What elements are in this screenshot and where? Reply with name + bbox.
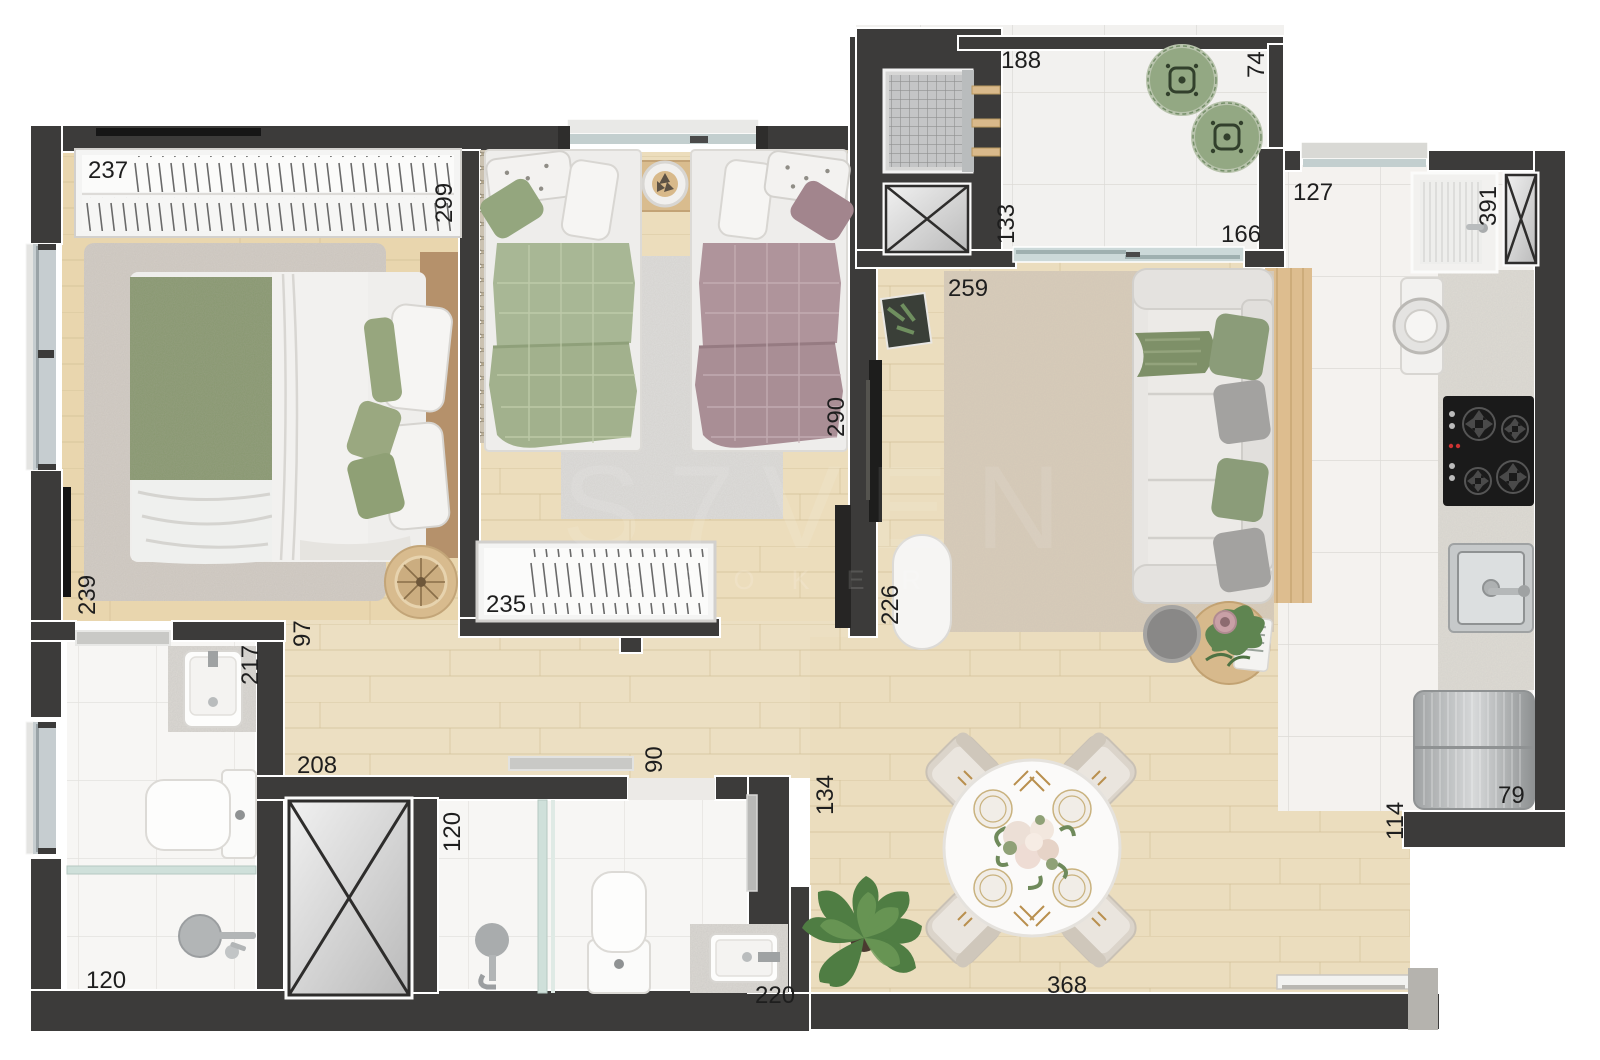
svg-text:290: 290 (823, 397, 850, 437)
svg-text:79: 79 (1498, 782, 1525, 809)
svg-text:90: 90 (641, 746, 668, 773)
svg-text:391: 391 (1475, 186, 1502, 226)
svg-text:166: 166 (1221, 221, 1261, 248)
svg-text:134: 134 (812, 775, 839, 815)
svg-text:120: 120 (439, 812, 466, 852)
svg-text:239: 239 (74, 575, 101, 615)
svg-text:237: 237 (88, 157, 128, 184)
svg-text:97: 97 (289, 620, 316, 647)
svg-text:217: 217 (237, 645, 264, 685)
svg-text:120: 120 (86, 967, 126, 994)
svg-text:127: 127 (1293, 179, 1333, 206)
svg-text:114: 114 (1382, 802, 1409, 840)
svg-text:259: 259 (948, 275, 988, 302)
svg-text:299: 299 (431, 183, 458, 223)
svg-text:133: 133 (993, 204, 1020, 244)
svg-text:220: 220 (755, 982, 795, 1009)
svg-text:208: 208 (297, 752, 337, 779)
svg-text:235: 235 (486, 591, 526, 618)
svg-text:188: 188 (1001, 47, 1041, 74)
svg-text:BROKER: BROKER (622, 565, 958, 595)
svg-text:S7VEN: S7VEN (562, 442, 1089, 574)
svg-text:368: 368 (1047, 972, 1087, 999)
svg-text:226: 226 (877, 585, 904, 625)
svg-text:74: 74 (1243, 51, 1270, 78)
